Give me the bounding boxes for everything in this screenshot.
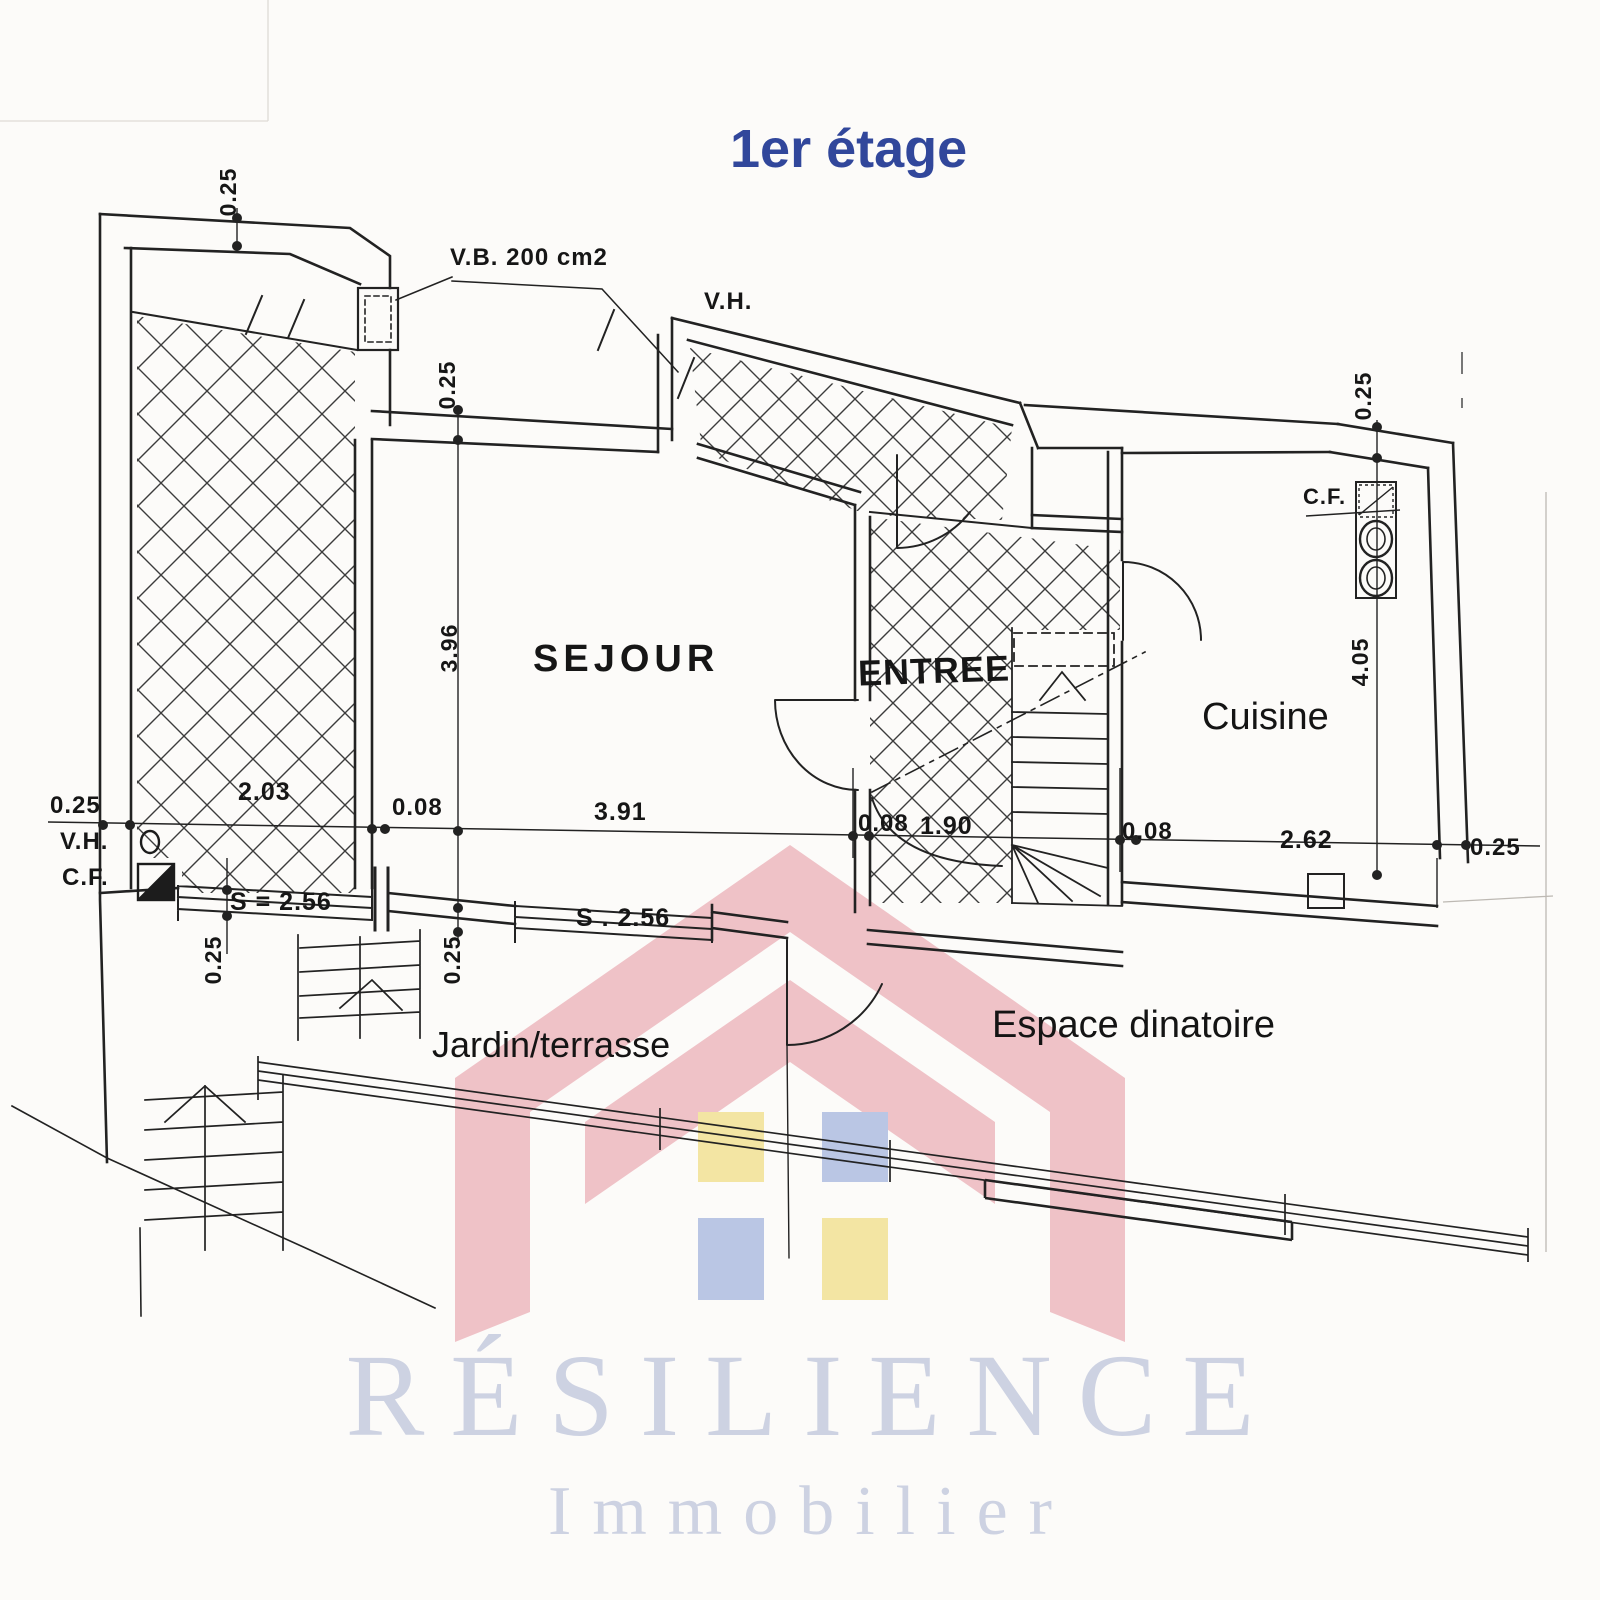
dim-wall-top-left: 0.25 (216, 162, 240, 222)
dim-wall-right: 0.25 (1470, 836, 1521, 860)
dim-sill-a: 0.25 (201, 930, 225, 990)
floor-plan-page: 1er étage V.B. 200 cm2 V.H. C.F. 0.25 0.… (0, 0, 1600, 1600)
brand-wordmark: RÉSILIENCE (0, 1328, 1600, 1464)
dim-wall-sejour-top: 0.25 (435, 355, 459, 415)
dim-cuisine-width: 2.62 (1280, 828, 1333, 853)
vent-annotation: V.B. 200 cm2 (450, 246, 608, 270)
balcony-hatch (690, 348, 1012, 520)
door-jardin (787, 940, 882, 1045)
door-cuisine (1123, 562, 1201, 640)
dim-terrace-width: 2.03 (238, 780, 291, 805)
terrace-hatch (137, 316, 355, 893)
room-label-jardin: Jardin/terrasse (432, 1024, 670, 1066)
dim-stair-width: 1.90 (920, 814, 973, 839)
page-title: 1er étage (730, 118, 967, 180)
room-label-sejour: SEJOUR (533, 638, 719, 681)
garden-window-band (258, 1056, 1528, 1262)
room-label-espace-dinatoire: Espace dinatoire (992, 1004, 1275, 1047)
vh-left-annotation: V.H. (60, 830, 108, 854)
dim-partition-c: 0.08 (1122, 820, 1173, 844)
entree-hatch (870, 517, 1120, 903)
window-a-area: S = 2.56 (230, 890, 332, 915)
dim-cuisine-depth: 4.05 (1348, 632, 1372, 692)
room-label-cuisine: Cuisine (1202, 696, 1329, 739)
vh-top-annotation: V.H. (704, 290, 752, 314)
dim-sill-b: 0.25 (440, 930, 464, 990)
cf-left-annotation: C.F. (62, 866, 109, 890)
dim-wall-top-right: 0.25 (1351, 366, 1375, 426)
brand-tagline: Immobilier (0, 1472, 1600, 1552)
room-label-entree: ENTREE (857, 647, 1010, 694)
garden-stair-arrow-a (340, 980, 402, 1010)
dim-sejour-depth: 3.96 (437, 618, 461, 678)
dim-partition-b: 0.08 (858, 812, 909, 836)
dim-wall-left: 0.25 (50, 794, 101, 818)
door-sejour-entree (775, 700, 858, 790)
cf-right-annotation: C.F. (1303, 486, 1346, 508)
window-b-area: S . 2.56 (576, 906, 670, 931)
dim-sejour-width: 3.91 (594, 800, 647, 825)
dim-partition-a: 0.08 (392, 796, 443, 820)
